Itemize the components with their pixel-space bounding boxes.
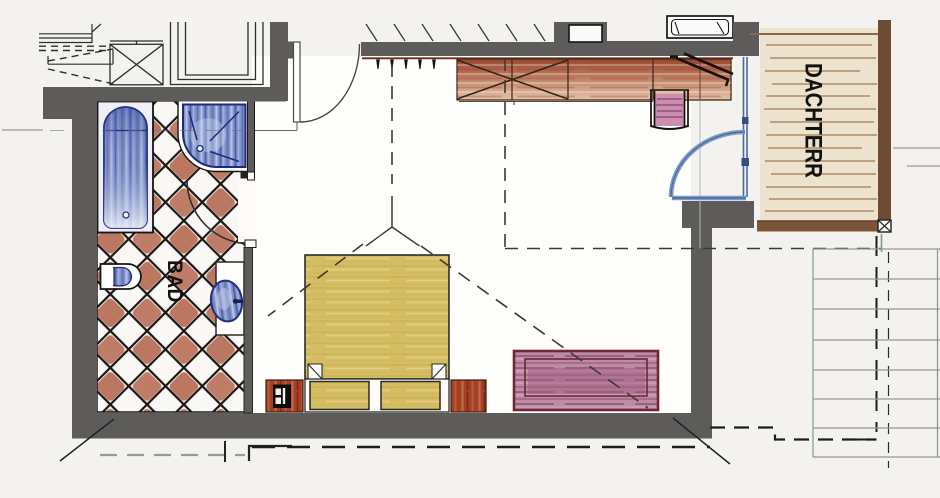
svg-text:DACHTERR: DACHTERR: [800, 63, 827, 178]
svg-text:BAD: BAD: [163, 260, 186, 303]
